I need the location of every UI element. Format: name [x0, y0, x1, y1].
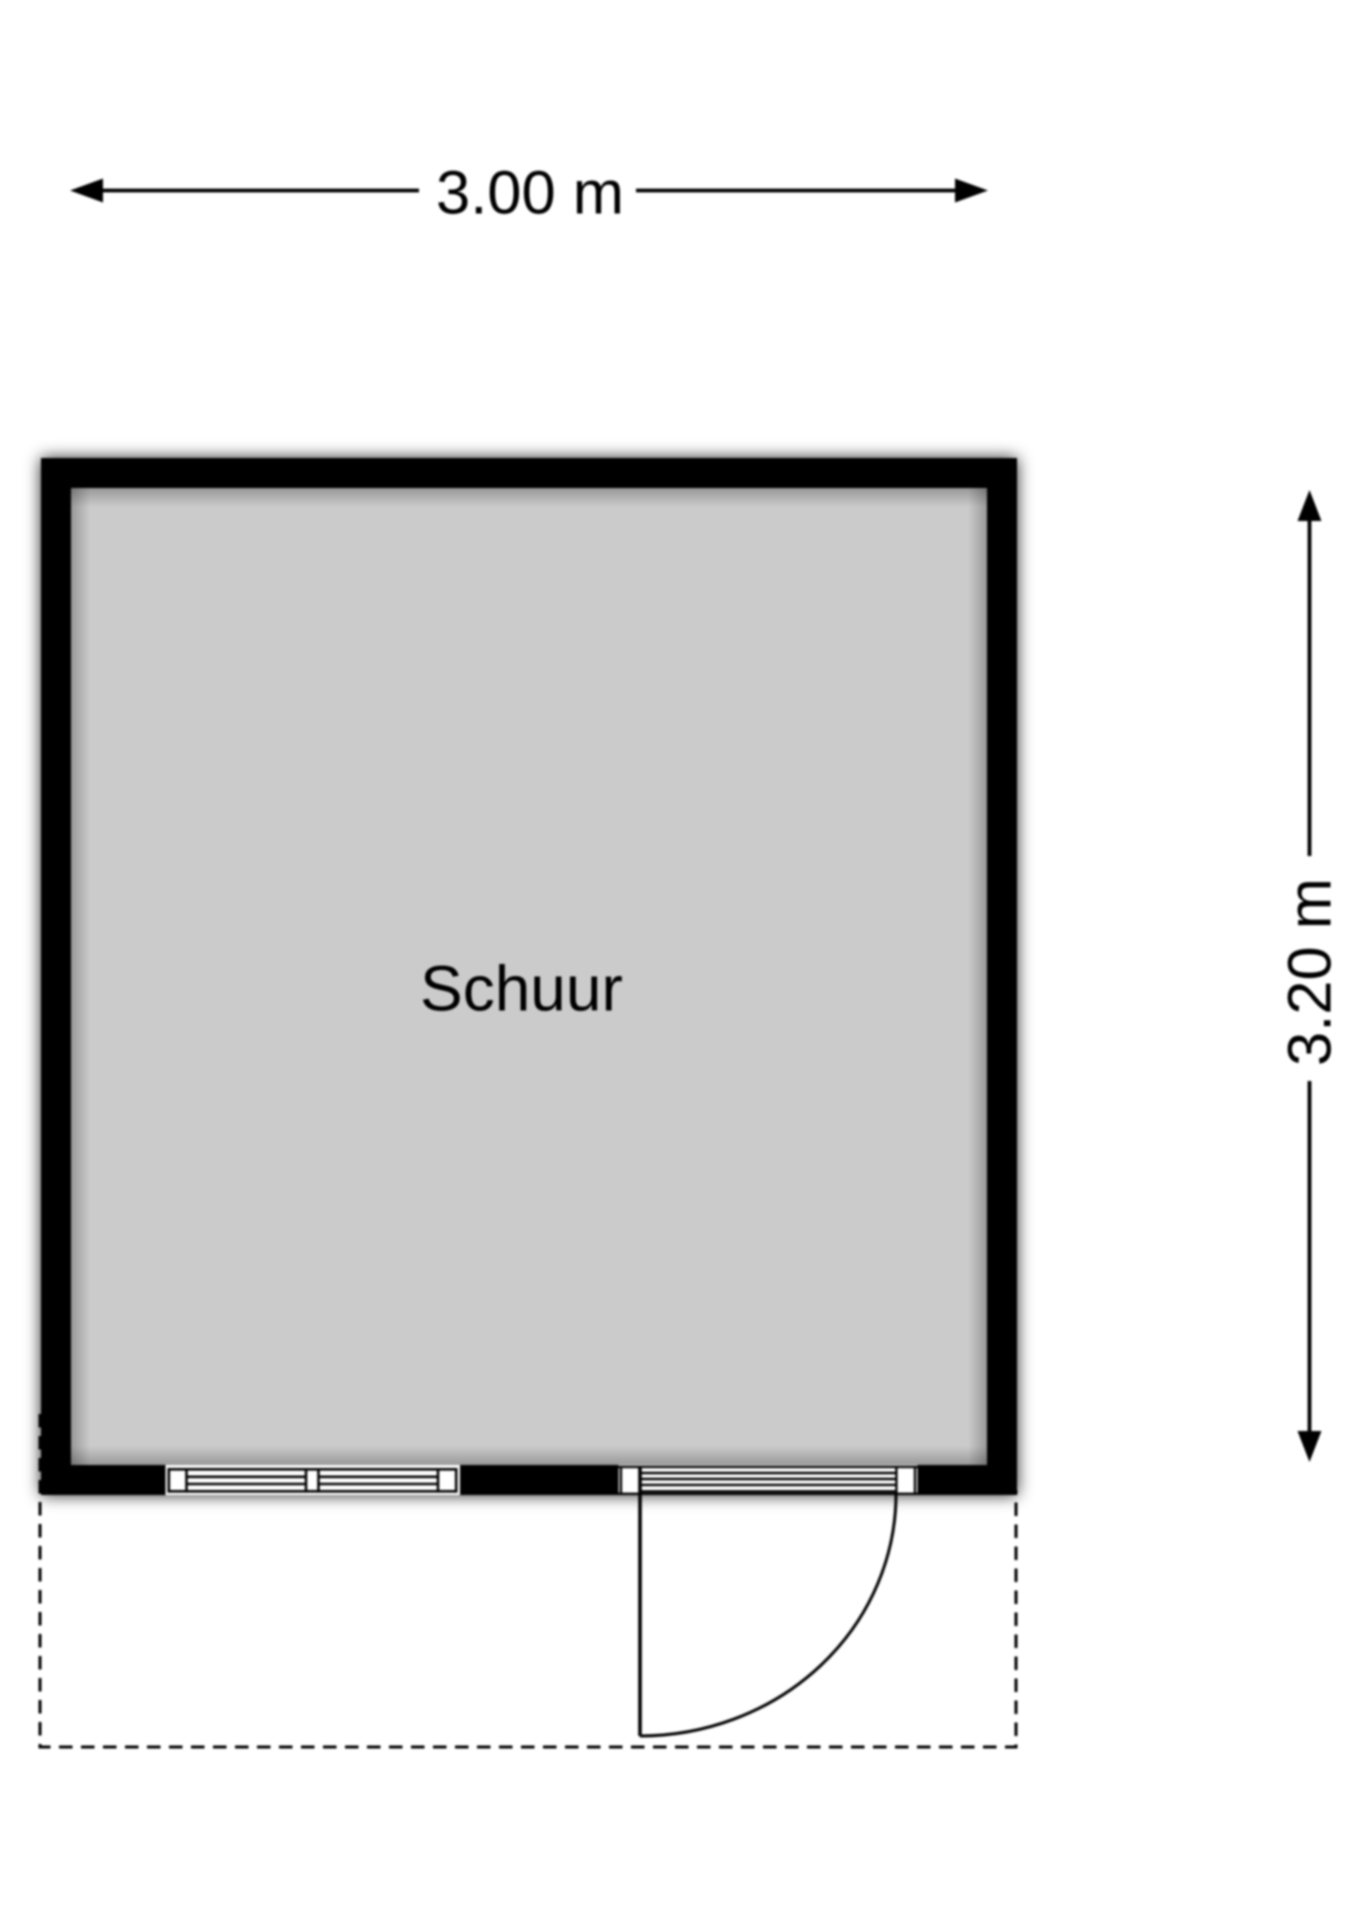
svg-text:3.20 m: 3.20 m	[1276, 878, 1345, 1066]
svg-text:Schuur: Schuur	[420, 953, 623, 1025]
svg-text:3.00 m: 3.00 m	[436, 159, 624, 228]
